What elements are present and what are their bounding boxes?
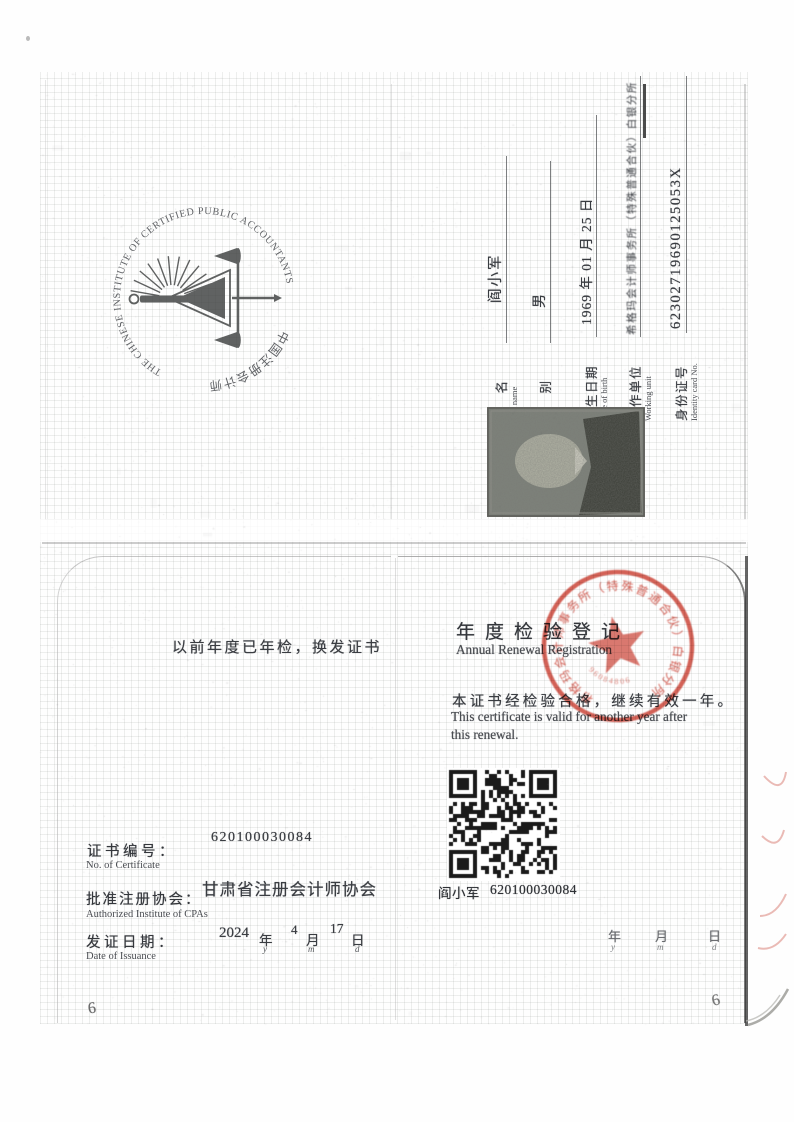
red-edge-marks: [756, 766, 792, 966]
full-name-value: 阎小军: [484, 254, 505, 304]
lower-top-edge-line: [42, 542, 746, 544]
id-photo: [487, 407, 645, 517]
id-card-label: 身份证号 Identity card No.: [675, 363, 700, 421]
lower-center-fold-line: [395, 558, 396, 1020]
authorized-institute-value: 甘肃省注册会计师协会: [202, 876, 377, 900]
sex-underline: 男: [550, 161, 551, 343]
working-unit-value: 希格玛会计师事务所（特殊普通合伙）白银分所: [624, 81, 639, 335]
id-card-value: 62302719690125053X: [668, 166, 685, 329]
issue-date-label-en: Date of Issuance: [86, 951, 156, 962]
previous-renewal-note: 以前年度已年检，换发证书: [172, 636, 382, 657]
blank-day-letter: d: [712, 942, 717, 952]
scanned-certificate-page: THE CHINESE INSTITUTE OF CERTIFIED PUBLI…: [0, 0, 794, 1122]
issue-date-label-zh: 发证日期：: [86, 931, 176, 952]
dob-value: 1969 年 01 月 25 日: [575, 198, 595, 325]
upper-left-edge-line: [45, 80, 46, 520]
field-working-unit: 工作单位 Working unit 希格玛会计师事务所（特殊普通合伙）白银分所: [610, 76, 654, 421]
id-card-underline: 62302719690125053X: [686, 76, 687, 333]
certificate-number-value: 620100030084: [211, 830, 313, 846]
certificate-number-label-en: No. of Certificate: [86, 860, 160, 871]
issue-month-value: 4: [291, 922, 298, 938]
red-company-stamp: 希格玛会计师事务所（特殊普通合伙）白银分所 96084806: [523, 551, 713, 741]
blank-month-letter: m: [657, 942, 664, 952]
holder-info-rotated-block: 姓名 Full name 阎小军 性别 Sex 男 出生日期: [478, 76, 700, 424]
qr-caption-number: 620100030084: [490, 882, 577, 902]
issue-month-letter: m: [308, 944, 315, 954]
sex-value: 男: [529, 294, 549, 308]
upper-center-fold-line: [391, 84, 392, 520]
qr-code: [447, 768, 560, 881]
id-card-label-en: Identity card No.: [690, 363, 700, 421]
issue-day-value: 17: [330, 921, 344, 937]
renewal-statement-en-line2: this renewal.: [451, 727, 518, 743]
working-unit-label-en: Working unit: [644, 365, 654, 421]
id-card-label-zh: 身份证号: [675, 363, 689, 421]
field-sex: 性别 Sex 男: [522, 76, 564, 421]
working-unit-underline: 希格玛会计师事务所（特殊普通合伙）白银分所: [640, 76, 641, 337]
field-date-of-birth: 出生日期 Date of birth 1969 年 01 月 25 日: [566, 76, 610, 421]
page-gap-band: [40, 519, 748, 542]
blank-year-letter: y: [611, 942, 615, 952]
issue-day-letter: d: [355, 944, 360, 954]
qr-caption: 阎小军 620100030084: [438, 882, 577, 902]
full-name-underline: 阎小军: [506, 156, 507, 343]
certificate-number-label-zh: 证书编号：: [87, 840, 177, 861]
scan-speck: [26, 36, 30, 41]
authorized-institute-label-zh: 批准注册协会：: [86, 888, 202, 909]
field-identity-card-no: 身份证号 Identity card No. 62302719690125053…: [655, 76, 700, 421]
cicpa-seal-logo: THE CHINESE INSTITUTE OF CERTIFIED PUBLI…: [104, 198, 304, 398]
authorized-institute-label-en: Authorized Institute of CPAs: [86, 909, 208, 920]
dob-underline: 1969 年 01 月 25 日: [596, 115, 597, 337]
page-curl-corner: [744, 985, 792, 1027]
issue-year-letter: y: [263, 944, 267, 954]
upper-right-edge-line: [744, 84, 746, 520]
lower-right-dark-edge: [745, 556, 748, 1026]
qr-caption-name: 阎小军: [438, 882, 480, 902]
pen-emblem: [130, 295, 202, 304]
cicpa-seal-svg: THE CHINESE INSTITUTE OF CERTIFIED PUBLI…: [104, 198, 304, 398]
field-full-name: 姓名 Full name 阎小军: [478, 76, 520, 421]
issue-year-value: 2024: [219, 925, 249, 942]
